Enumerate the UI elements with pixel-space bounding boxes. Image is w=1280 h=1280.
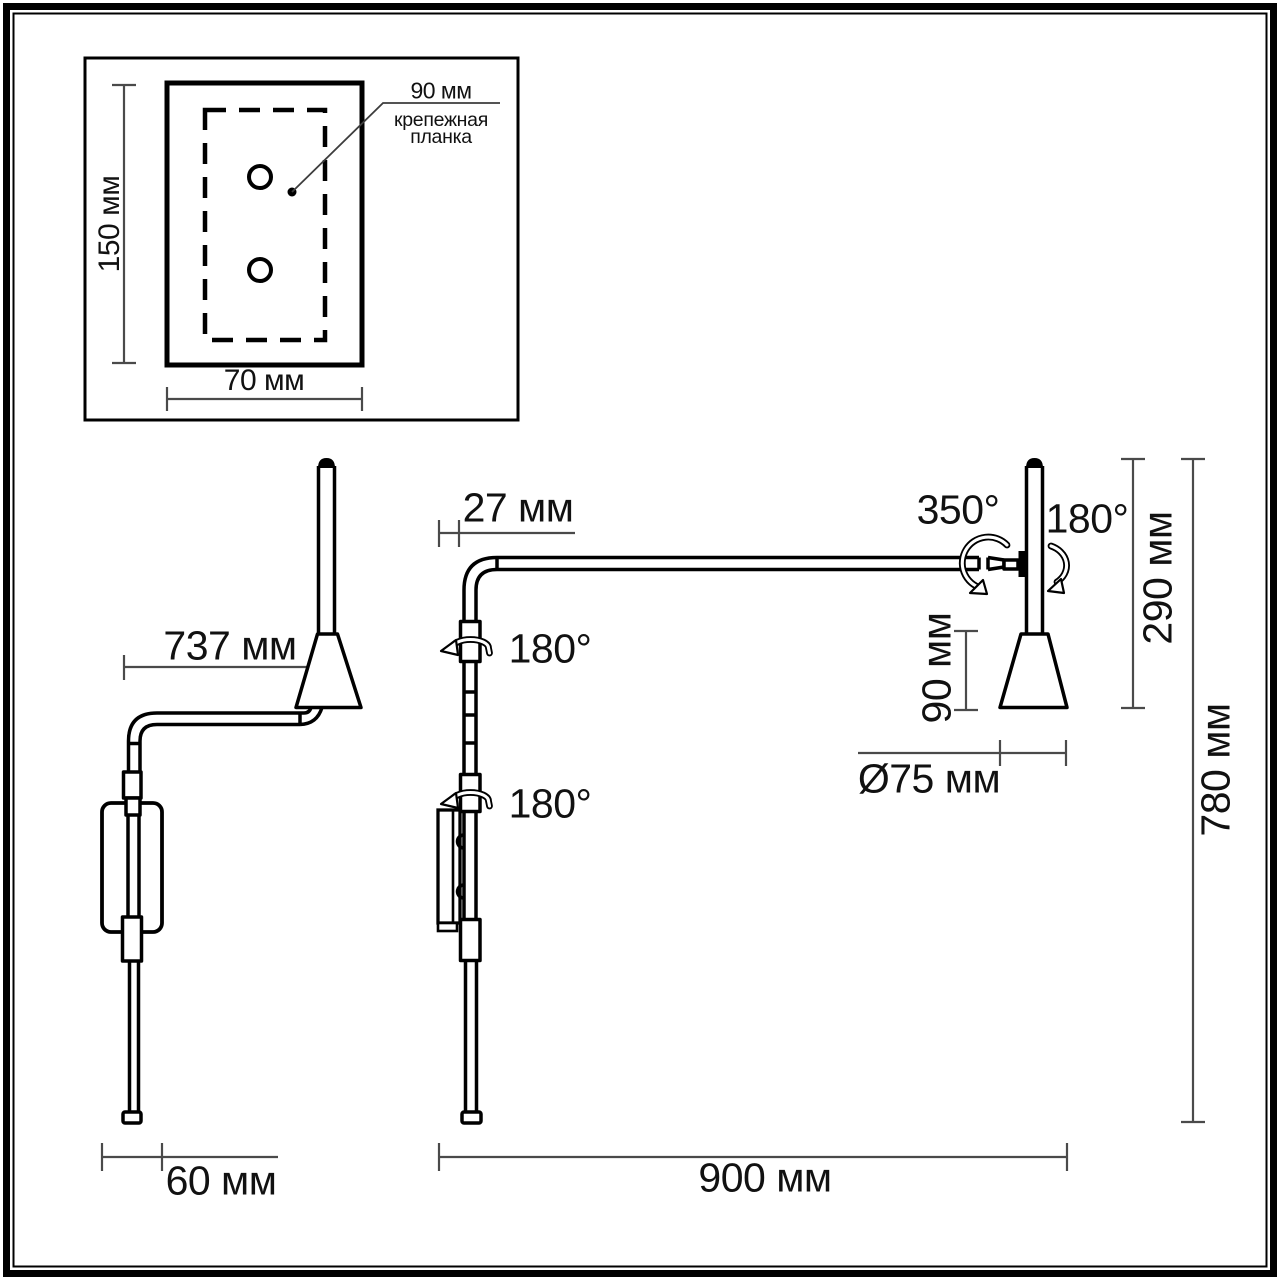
mounting-plate-caption: крепежная планка [394,112,488,146]
arm-bend [464,558,497,591]
head-tube-front [1027,466,1043,633]
lower-rod [130,961,139,1112]
tilt-180-arrow [1048,546,1067,593]
upper-rod [129,741,141,772]
wall-plate-front [438,810,460,923]
joint-nub [1004,560,1018,569]
arm-width-label: 900 мм [698,1158,831,1199]
rod-mid-section [464,662,476,775]
swivel-350-arrow [962,537,1007,594]
wall-plate-side [102,803,162,932]
swivel-angle-label: 350° [917,490,1000,531]
cone-shade-front [1000,634,1067,708]
hole-spacing-label: 90 мм [410,80,471,103]
screw-hole-bottom [249,259,271,281]
rod-end-cap [123,1112,141,1123]
side-reach-label: 737 мм [163,626,296,667]
arm-end-joint [979,558,1004,570]
lower-connector [123,917,142,961]
dimension-drawing-page: 150 мм 70 мм 90 мм крепежная планка 737 … [0,0,1280,1280]
upper-rotation-label: 180° [509,629,592,670]
rod-end-cap-front [462,1112,481,1123]
inset-width-label: 70 мм [224,366,304,396]
head-tube [319,466,335,633]
rod-top-section [464,590,476,622]
tube-cap [318,458,335,468]
side-depth-label: 60 мм [166,1161,277,1202]
shade-height-label: 90 мм [917,613,958,724]
wall-offset-label: 27 мм [463,488,574,529]
head-tube-cap [1026,458,1043,468]
head-height-label: 290 мм [1138,511,1179,644]
arm-elbow-right [300,708,322,725]
tilt-angle-label: 180° [1046,499,1129,540]
cone-shade [296,634,361,708]
arm-elbow-left [129,713,158,741]
lower-rotation-label: 180° [509,784,592,825]
bottom-connector [461,920,481,961]
swing-arm [497,558,979,570]
rod-joint-block [124,772,142,798]
side-view-lamp [102,458,361,1171]
front-view-lamp [438,520,1067,1171]
horizontal-arm [157,713,300,725]
shade-diameter-label: Ø75 мм [858,759,1000,800]
lower-rod-front [466,961,477,1113]
rod-through-plate-front [464,812,476,920]
inset-height-label: 150 мм [95,176,125,273]
mounting-plate-caption-line2: планка [394,129,488,146]
screw-hole-top [249,166,271,188]
rod-sleeve [126,798,140,815]
backplate-outline [167,83,362,365]
overall-height-label: 780 мм [1196,703,1237,836]
wall-plate-foot [438,923,457,931]
